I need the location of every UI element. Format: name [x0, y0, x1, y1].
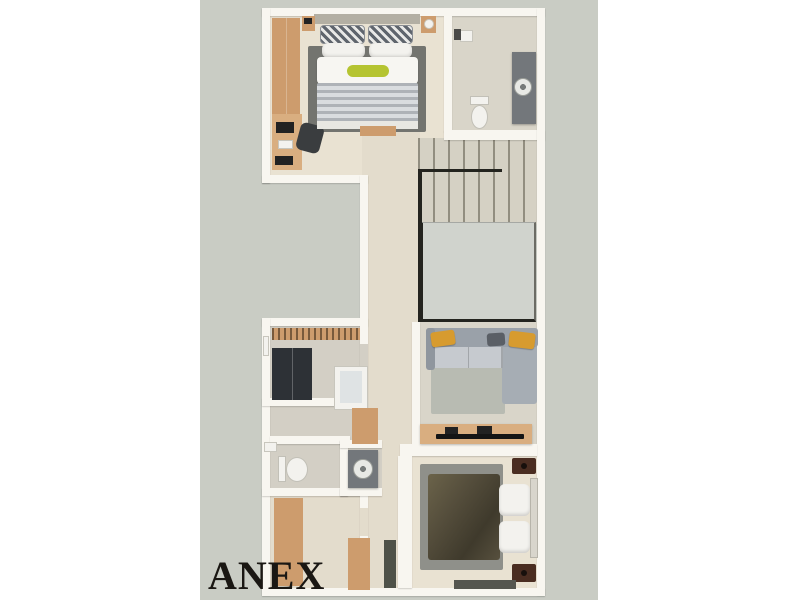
bed2-duvet	[428, 474, 500, 560]
shower-tray	[334, 366, 368, 410]
laptop	[276, 122, 294, 133]
wall	[262, 175, 368, 183]
sofa-pillow-dark	[487, 332, 506, 346]
wall	[398, 456, 412, 588]
toilet2-bowl	[286, 457, 308, 482]
nightstand-lamp	[424, 19, 434, 29]
bathroom2-faucet	[264, 442, 277, 452]
tv-device-right	[477, 426, 492, 434]
bed1-bench	[360, 126, 396, 136]
floorplan-image: ANEX	[200, 0, 598, 600]
wardrobe-seam	[292, 348, 293, 400]
toilet2-tank	[278, 456, 286, 482]
bed2-pillow-bottom	[499, 521, 530, 553]
stair-railing-vertical	[418, 169, 422, 322]
sofa-seat	[435, 347, 503, 368]
bed1-white-pillow-left	[322, 43, 365, 58]
bathroom1-door-hinge	[454, 29, 461, 40]
wall	[444, 16, 452, 132]
corridor-door-leaf	[348, 538, 370, 590]
wall	[262, 318, 368, 326]
staircase	[418, 138, 537, 224]
stair-void-opening	[420, 222, 536, 322]
bed2-bench	[454, 580, 516, 589]
closet-shelf	[263, 336, 269, 356]
bedroom1-wardrobe	[272, 18, 300, 114]
door-opening	[360, 508, 368, 536]
stair-railing-horizontal	[420, 169, 502, 172]
wall	[412, 322, 420, 444]
wall	[262, 8, 270, 183]
bed1-pillow-right	[368, 25, 413, 44]
wall	[270, 436, 350, 444]
bed1-pillow-left	[320, 25, 365, 44]
desk-item	[275, 156, 293, 165]
bed1-accent-pillow	[347, 65, 389, 77]
wall	[537, 8, 545, 595]
closet-dark-wardrobe	[272, 348, 312, 400]
wall	[360, 175, 368, 326]
bathroom1-sink	[514, 78, 532, 96]
wall	[400, 444, 537, 456]
shower-tray-base	[340, 371, 362, 403]
bed1-headboard	[314, 14, 420, 24]
wall	[444, 130, 545, 140]
toilet-bowl	[471, 105, 488, 129]
tv-device-left	[445, 427, 458, 434]
bed1-white-pillow-right	[369, 43, 412, 58]
sofa-pillow-mustard-right	[508, 330, 536, 349]
toilet-tank	[470, 96, 489, 105]
nightstand-knob	[521, 463, 527, 469]
nightstand-left-item	[304, 18, 312, 24]
desk-papers	[278, 140, 293, 149]
bed2-pillow-top	[499, 484, 530, 516]
bathroom1-shelf	[460, 30, 473, 42]
tvroom-rug	[431, 368, 505, 414]
bed1-striped-duvet	[317, 83, 418, 123]
wall	[340, 488, 382, 496]
bed2-headboard	[530, 478, 538, 558]
closet-hanging-rail	[272, 328, 360, 340]
bathroom2-sink	[353, 459, 373, 479]
laundry-cabinet	[352, 408, 378, 444]
corridor-cabinet	[384, 540, 396, 588]
tv-soundbar	[436, 434, 524, 439]
bed2-nightstand-top	[512, 458, 536, 474]
nightstand-knob	[521, 570, 527, 576]
page: { "plan": { "label": "ANEX", "palette": …	[0, 0, 800, 600]
wardrobe-seam	[286, 18, 287, 114]
plan-title: ANEX	[208, 552, 325, 599]
